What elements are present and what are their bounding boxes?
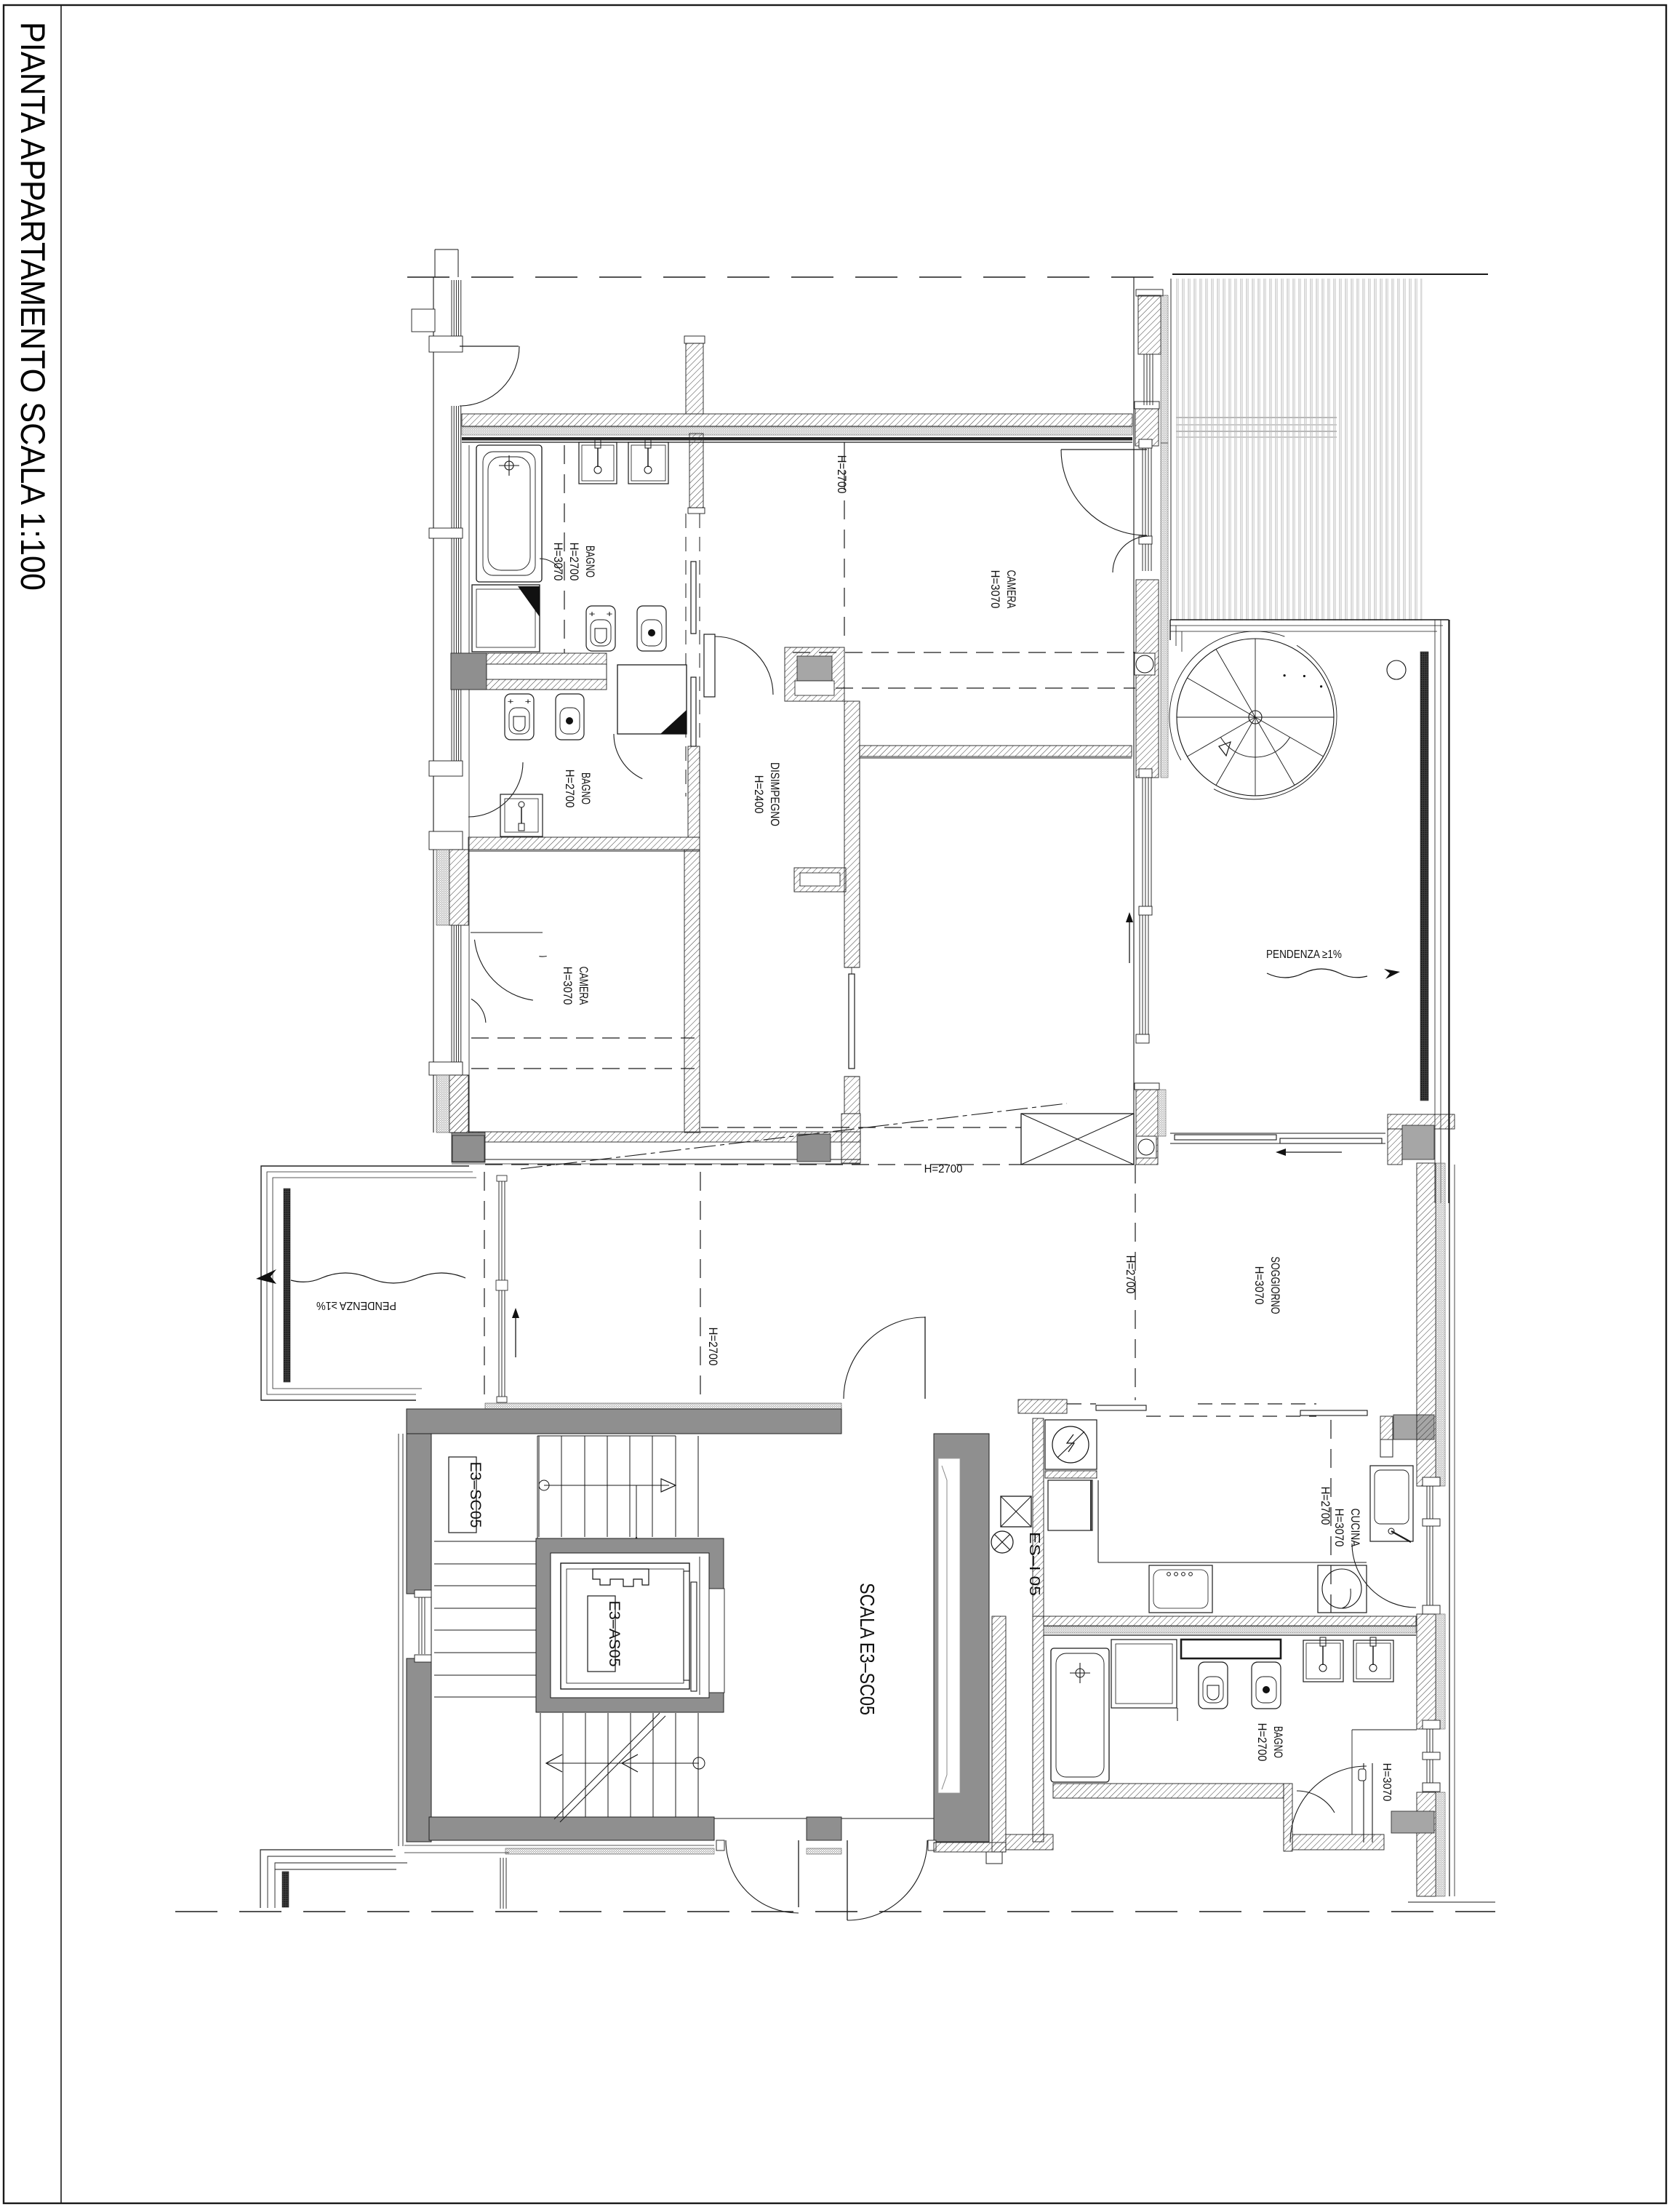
svg-text:SCALA E3–SC05: SCALA E3–SC05 <box>856 1583 879 1715</box>
svg-text:H=2700: H=2700 <box>1124 1255 1137 1294</box>
svg-text:H=3070: H=3070 <box>1332 1509 1346 1547</box>
svg-text:DISIMPEGNO: DISIMPEGNO <box>768 762 782 826</box>
svg-text:E3–AS05: E3–AS05 <box>606 1601 623 1667</box>
svg-text:+: + <box>607 609 613 619</box>
svg-text:E3–SC05: E3–SC05 <box>467 1462 484 1528</box>
svg-text:BAGNO: BAGNO <box>579 772 593 804</box>
svg-text:CAMERA: CAMERA <box>577 967 591 1005</box>
svg-text:SOGGIORNO: SOGGIORNO <box>1268 1256 1282 1314</box>
svg-text:PENDENZA ≥1%: PENDENZA ≥1% <box>1266 949 1342 961</box>
svg-text:BAGNO: BAGNO <box>1271 1726 1285 1758</box>
svg-text:H=2700: H=2700 <box>1255 1723 1269 1762</box>
svg-text:H=3070: H=3070 <box>551 543 565 581</box>
svg-text:+: + <box>508 698 514 706</box>
svg-text:H=2700: H=2700 <box>835 455 849 494</box>
svg-text:H=2700: H=2700 <box>563 770 577 808</box>
svg-text:+: + <box>589 609 596 619</box>
svg-text:ES–I 05: ES–I 05 <box>1026 1532 1042 1596</box>
svg-text:H=3070: H=3070 <box>988 570 1002 609</box>
svg-text:+: + <box>525 698 532 706</box>
svg-text:CAMERA: CAMERA <box>1004 570 1018 609</box>
svg-text:PENDENZA ≥1%: PENDENZA ≥1% <box>316 1299 396 1311</box>
svg-text:H=2700: H=2700 <box>706 1327 720 1366</box>
svg-text:H=3070: H=3070 <box>561 967 575 1005</box>
svg-text:CUCINA: CUCINA <box>1348 1509 1362 1547</box>
svg-text:H=2700: H=2700 <box>567 543 581 581</box>
svg-text:H=3070: H=3070 <box>1252 1266 1266 1305</box>
svg-text:H=2700: H=2700 <box>1319 1487 1332 1525</box>
svg-text:H=2400: H=2400 <box>752 775 766 814</box>
svg-text:H=3070: H=3070 <box>1380 1763 1393 1802</box>
svg-text:BAGNO: BAGNO <box>583 546 597 578</box>
svg-text:PIANTA APPARTAMENTO SCALA 1:10: PIANTA APPARTAMENTO SCALA 1:100 <box>14 22 52 591</box>
